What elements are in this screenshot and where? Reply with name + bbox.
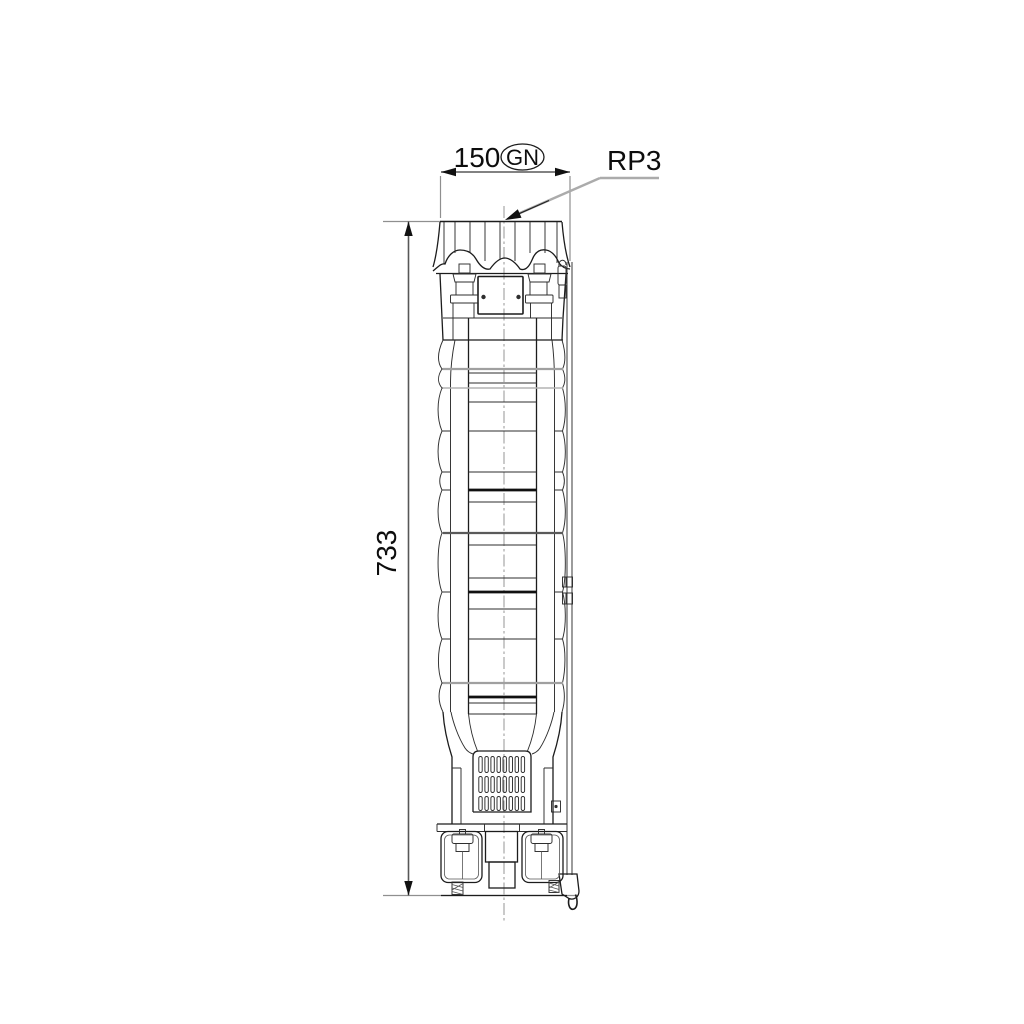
- casing-scalloped-edge: [433, 250, 570, 271]
- cable-guard-strap-left: [438, 340, 455, 712]
- width-dim-value: 150: [454, 142, 501, 173]
- pump-check-valve-casing: [433, 222, 570, 274]
- dim-arrow-bottom: [404, 881, 412, 896]
- motor-shaft-housing: [486, 832, 518, 889]
- dim-arrow-right: [555, 168, 570, 176]
- strainer-frame: [473, 751, 531, 812]
- cable-guard-clamp-left: [451, 264, 479, 340]
- drawing-canvas: 150 GN 733 RP3: [0, 0, 1024, 1024]
- cable-guard-strap-right: [552, 340, 565, 712]
- interconnector-arm-left: [443, 712, 473, 824]
- technical-drawing: 150 GN 733 RP3: [0, 0, 1024, 1024]
- cable-plug-right: [531, 834, 552, 844]
- width-dim-qualifier: GN: [506, 145, 539, 170]
- motor-section: [437, 824, 567, 896]
- nameplate-screw-left: [481, 295, 485, 299]
- port-label: RP3: [607, 145, 661, 176]
- strainer-slots: [479, 757, 525, 811]
- cable-end-loop: [569, 895, 578, 910]
- leader-arrowhead: [505, 209, 522, 220]
- motor-pod-left: [441, 830, 482, 883]
- dimension-width: 150 GN: [441, 142, 571, 261]
- dimension-height: 733: [371, 222, 578, 896]
- cable-plug-left: [452, 834, 473, 844]
- height-dim-value: 733: [371, 530, 402, 577]
- dim-arrow-top: [404, 222, 412, 237]
- stage-joint-bands: [469, 490, 537, 697]
- pump-stage-stack: [443, 318, 563, 714]
- nameplate-screw-right: [516, 295, 520, 299]
- motor-pod-right: [522, 830, 563, 883]
- cable-guard-clamp-right: [526, 264, 554, 340]
- suction-interconnector: [443, 712, 562, 824]
- motor-flange: [437, 824, 567, 832]
- section-hatch-left: [452, 882, 463, 895]
